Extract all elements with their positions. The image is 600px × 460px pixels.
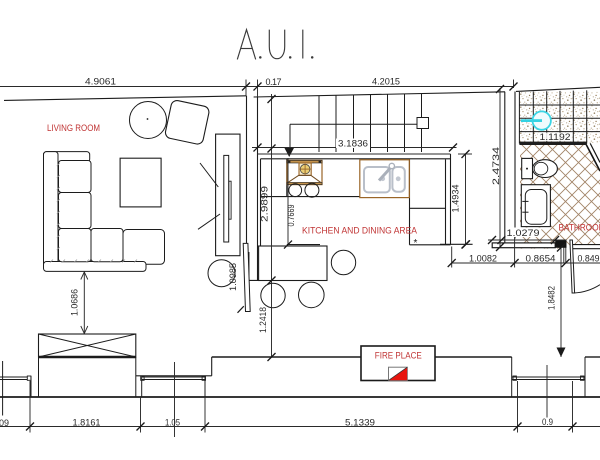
svg-text:0.9: 0.9 xyxy=(542,417,553,427)
svg-text:1.2418: 1.2418 xyxy=(258,307,268,333)
svg-text:FIRE PLACE: FIRE PLACE xyxy=(375,351,422,361)
svg-text:1.1192: 1.1192 xyxy=(540,132,571,142)
svg-text:2.4734: 2.4734 xyxy=(491,147,501,185)
svg-text:1.8161: 1.8161 xyxy=(73,418,101,428)
svg-text:*: * xyxy=(414,238,418,249)
svg-text:1.8482: 1.8482 xyxy=(547,286,557,310)
svg-text:KITCHEN AND DINING AREA: KITCHEN AND DINING AREA xyxy=(302,226,417,236)
svg-text:5.1339: 5.1339 xyxy=(345,418,375,428)
svg-text:2.9899: 2.9899 xyxy=(259,186,269,222)
svg-text:1.0686: 1.0686 xyxy=(70,289,80,316)
svg-text:1.0985: 1.0985 xyxy=(228,263,238,291)
svg-text:4.9061: 4.9061 xyxy=(85,77,116,87)
svg-text:0.7669: 0.7669 xyxy=(286,205,296,227)
svg-text:BATHROOM: BATHROOM xyxy=(559,223,600,233)
svg-text:1.0279: 1.0279 xyxy=(507,228,540,238)
svg-text:1.4934: 1.4934 xyxy=(451,185,461,213)
svg-text:4.2015: 4.2015 xyxy=(372,77,400,87)
svg-text:LIVING ROOM: LIVING ROOM xyxy=(47,123,100,133)
svg-text:0.17: 0.17 xyxy=(266,77,282,87)
svg-text:0.8654: 0.8654 xyxy=(526,254,556,264)
svg-text:0.849: 0.849 xyxy=(578,254,600,264)
svg-text:1.0082: 1.0082 xyxy=(469,254,497,264)
svg-text:1.05: 1.05 xyxy=(165,418,180,428)
svg-text:09: 09 xyxy=(0,418,9,428)
svg-text:3.1836: 3.1836 xyxy=(338,139,368,149)
